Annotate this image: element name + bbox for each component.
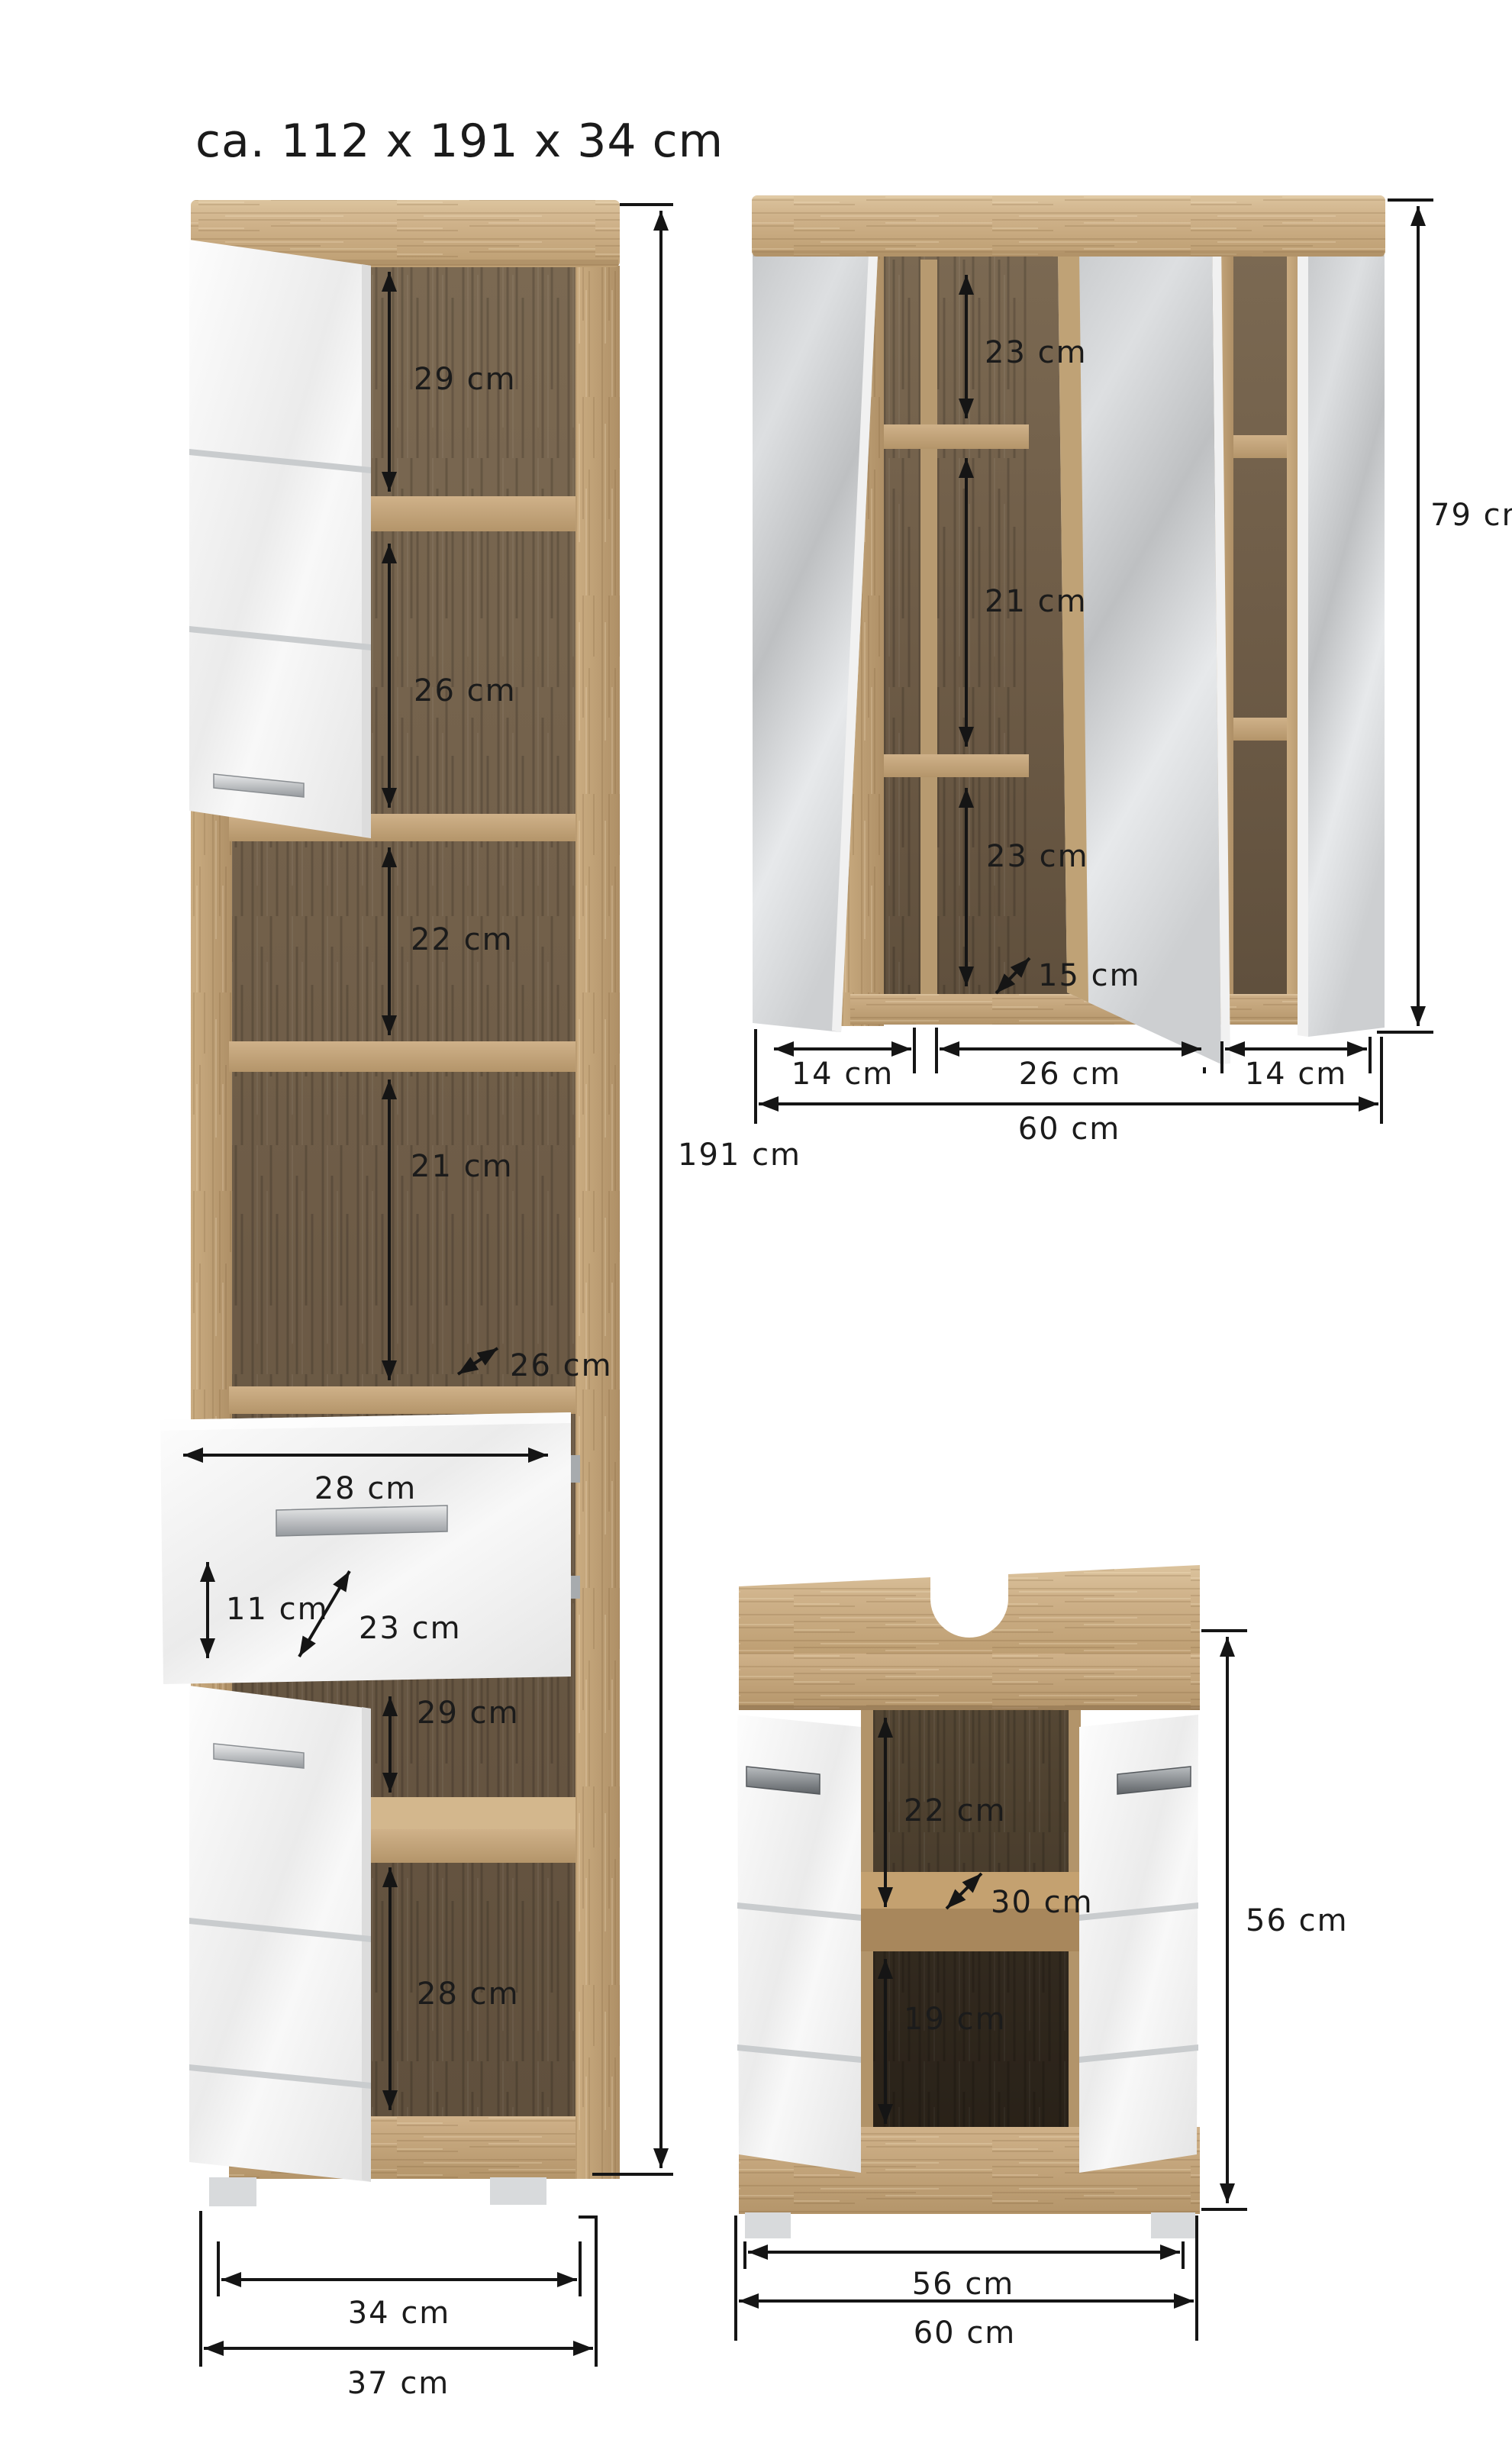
vanity-top-shadow bbox=[739, 1706, 1200, 1710]
mirror-cornice-shadow bbox=[753, 250, 1384, 257]
tall-shelf-3 bbox=[229, 1041, 577, 1072]
page-title: ca. 112 x 191 x 34 cm bbox=[195, 115, 724, 168]
mirror-shelf-right-2 bbox=[1233, 718, 1287, 741]
mirror-center-divider bbox=[920, 260, 937, 994]
mirror-door-right bbox=[1308, 234, 1385, 1037]
dim-mirror-door-left: 14 cm bbox=[756, 1028, 914, 1124]
dim-vanity-height: 56 cm bbox=[1201, 1631, 1349, 2209]
tall-shelf-4 bbox=[229, 1386, 577, 1414]
dim-tall-depth-label: 26 cm bbox=[510, 1348, 613, 1383]
dim-mirror-height-label: 79 cm bbox=[1430, 498, 1512, 533]
tall-right-panel-grain bbox=[575, 266, 620, 2179]
dim-tall-height-label: 191 cm bbox=[678, 1138, 801, 1173]
tall-upper-door-edge bbox=[362, 264, 371, 838]
vanity-interior-lower-shade bbox=[873, 1951, 1069, 2128]
dim-mirror-height: 79 cm bbox=[1377, 200, 1512, 1032]
tall-drawer-rail-bottom bbox=[571, 1576, 580, 1599]
tall-foot-left bbox=[209, 2177, 256, 2206]
dim-mirror-door-right-label: 14 cm bbox=[1245, 1057, 1348, 1092]
mirror-shelf-right-1 bbox=[1233, 435, 1287, 458]
dim-tall-drawer-depth-label: 23 cm bbox=[359, 1611, 462, 1646]
dim-tall-width-feet-label: 34 cm bbox=[348, 2296, 451, 2331]
tall-drawer-rail-top bbox=[571, 1455, 580, 1483]
dim-mirror-shelf-middle-label: 21 cm bbox=[985, 584, 1088, 619]
vanity-top-front-grain bbox=[739, 1654, 1200, 1710]
dim-mirror-width: 60 cm bbox=[759, 1037, 1381, 1147]
dim-vanity-width-inner-label: 56 cm bbox=[912, 2267, 1015, 2302]
dim-tall-width-feet: 34 cm bbox=[218, 2241, 580, 2331]
mirror-shelf-left-2 bbox=[884, 754, 1029, 777]
dim-tall-shelf1-label: 29 cm bbox=[414, 362, 517, 397]
dim-tall-width-total-label: 37 cm bbox=[347, 2366, 450, 2401]
dim-vanity-height-label: 56 cm bbox=[1246, 1903, 1349, 1938]
vanity-foot-left bbox=[745, 2212, 791, 2238]
dim-tall-drawer-height-label: 11 cm bbox=[226, 1592, 329, 1627]
dim-mirror-shelf-bottom-label: 23 cm bbox=[986, 839, 1089, 874]
dim-tall-drawer-width-label: 28 cm bbox=[314, 1471, 417, 1506]
mirror-interior-right-back bbox=[1233, 255, 1287, 994]
dim-vanity-width-inner: 56 cm bbox=[745, 2241, 1183, 2302]
dim-tall-shelf3-label: 22 cm bbox=[411, 922, 514, 957]
tall-upper-door bbox=[189, 240, 371, 838]
dim-tall-shelf4-label: 21 cm bbox=[411, 1149, 514, 1184]
vanity-foot-right bbox=[1151, 2212, 1195, 2238]
vanity-top-surface-grain bbox=[739, 1565, 1200, 1655]
tall-drawer-handle bbox=[276, 1505, 447, 1536]
tall-lower-door-edge bbox=[362, 1707, 371, 2182]
dim-mirror-depth-label: 15 cm bbox=[1038, 958, 1141, 993]
tall-foot-right bbox=[490, 2177, 546, 2205]
dim-vanity-width-total-label: 60 cm bbox=[914, 2316, 1017, 2351]
mirror-shelf-left-1 bbox=[884, 424, 1029, 449]
mirror-door-right-edge bbox=[1298, 243, 1308, 1037]
dim-tall-shelf2-label: 26 cm bbox=[414, 673, 517, 708]
dim-mirror-shelf-top-label: 23 cm bbox=[985, 335, 1088, 370]
mirror-cornice-grain bbox=[752, 195, 1385, 257]
dim-vanity-shelf-depth-label: 30 cm bbox=[991, 1885, 1094, 1920]
mirror-bottom-board-grain bbox=[850, 994, 1302, 1025]
dim-vanity-upper-label: 22 cm bbox=[904, 1793, 1007, 1828]
dim-mirror-door-left-label: 14 cm bbox=[791, 1057, 895, 1092]
furniture-dimension-diagram: ca. 112 x 191 x 34 cm bbox=[0, 0, 1512, 2443]
dim-mirror-door-center-label: 26 cm bbox=[1019, 1057, 1122, 1092]
dim-mirror-door-right: 14 cm bbox=[1222, 1037, 1370, 1092]
dim-tall-shelf6-label: 28 cm bbox=[417, 1977, 520, 2012]
dim-vanity-lower-label: 19 cm bbox=[904, 2002, 1007, 2037]
vanity-cabinet bbox=[737, 1565, 1200, 2238]
dim-tall-shelf5-label: 29 cm bbox=[417, 1696, 520, 1731]
dim-mirror-width-label: 60 cm bbox=[1018, 1112, 1121, 1147]
mirror-cabinet bbox=[752, 195, 1385, 1064]
